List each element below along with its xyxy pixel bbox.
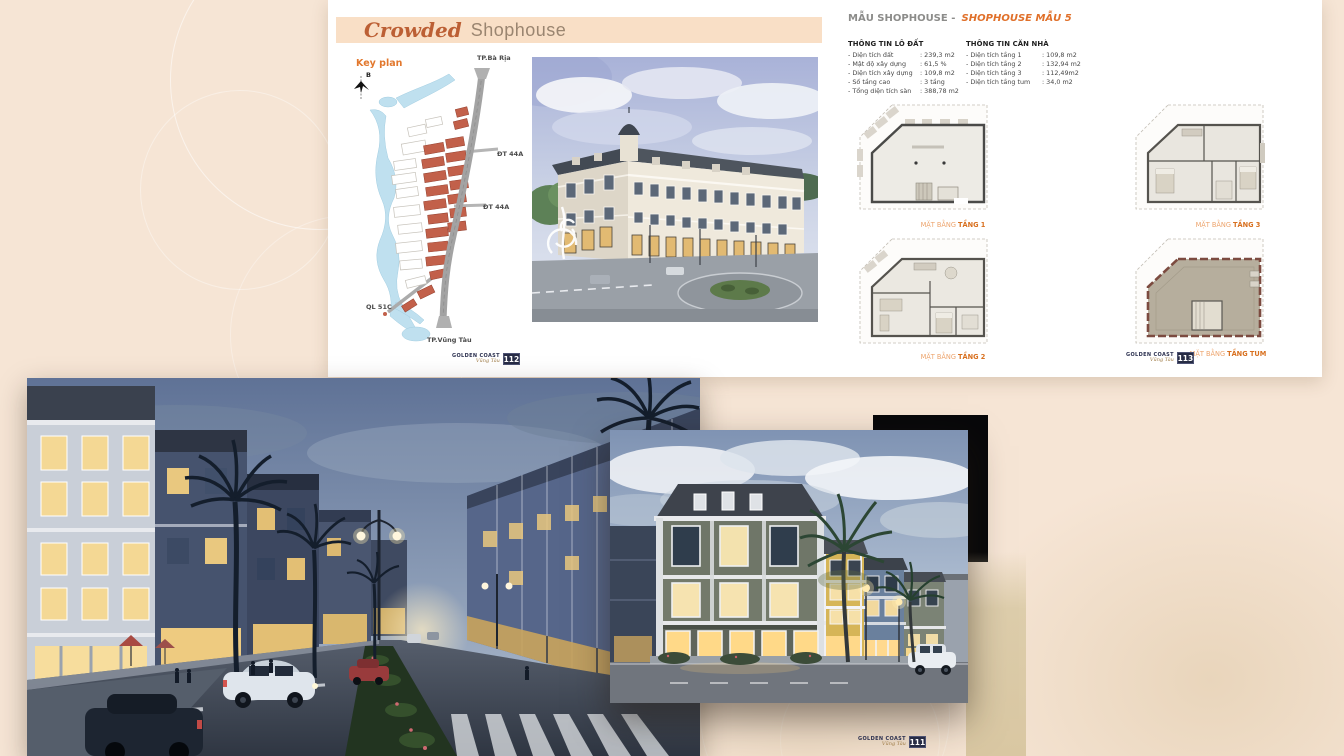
map-label-dt44a-1: ĐT 44A [497, 150, 523, 158]
shophouse-night-street-rendering [27, 378, 700, 756]
floor-plan-tang-3 [1130, 103, 1266, 215]
shophouse-day-rendering [532, 57, 818, 322]
floor-plan-label-tang-3: MẶT BẰNGTẦNG 3 [1160, 221, 1296, 229]
model-title: MẪU SHOPHOUSE - SHOPHOUSE MẪU 5 [848, 13, 1072, 24]
lot-info-panel: THÔNG TIN LÔ ĐẤT - Diện tích đất: 239,3 … [848, 40, 966, 97]
floor-plan-tang-1 [856, 103, 990, 215]
spec-row: - Diện tích đất: 239,3 m2 [848, 52, 966, 60]
brand-logo: GOLDEN COAST Vũng Tàu [1126, 353, 1174, 364]
spec-row: - Diện tích tầng 3: 112,49m2 [966, 70, 1090, 78]
map-label-tp-ba-ria: TP.Bà Rịa [477, 54, 511, 62]
spec-row: - Diện tích tầng 1: 109,8 m2 [966, 52, 1090, 60]
page-number-badge: 111 [909, 736, 926, 748]
map-label-ql51c: QL 51C [366, 303, 392, 311]
house-info-panel: THÔNG TIN CĂN NHÀ - Diện tích tầng 1: 10… [966, 40, 1090, 88]
shophouse-dusk-corner-rendering [610, 430, 968, 703]
page-number-badge: 112 [503, 353, 520, 365]
floor-plan-tang-2 [856, 237, 990, 349]
page-footer-111: GOLDEN COAST Vũng Tàu 111 [858, 736, 926, 748]
floor-plan-label-tang-2: MẶT BẰNGTẦNG 2 [886, 353, 1020, 361]
model-title-prefix: MẪU SHOPHOUSE - [848, 13, 955, 24]
spec-row: - Diện tích tầng tum: 34,0 m2 [966, 79, 1090, 87]
spec-row: - Diện tích xây dựng: 109,8 m2 [848, 70, 966, 78]
brand-script: Vũng Tàu [452, 359, 500, 365]
spec-row: - Tổng diện tích sàn: 388,78 m2 [848, 88, 966, 96]
brand-script: Vũng Tàu [1126, 358, 1174, 364]
brand-script: Vũng Tàu [858, 742, 906, 748]
lot-info-heading: THÔNG TIN LÔ ĐẤT [848, 40, 966, 48]
spec-row: - Diện tích tầng 2: 132,94 m2 [966, 61, 1090, 69]
map-label-dt44a-2: ĐT 44A [483, 203, 509, 211]
page-footer-112: GOLDEN COAST Vũng Tàu 112 [452, 353, 520, 365]
model-title-accent: SHOPHOUSE MẪU 5 [962, 13, 1072, 24]
map-label-tp-vung-tau: TP.Vũng Tàu [427, 336, 472, 344]
page-header-band: Crowded Shophouse [336, 17, 822, 43]
house-info-heading: THÔNG TIN CĂN NHÀ [966, 40, 1090, 48]
page-footer-113: GOLDEN COAST Vũng Tàu 113 [1126, 352, 1194, 364]
page-title-regular: Shophouse [471, 20, 567, 41]
tan-accent-band [966, 552, 1026, 756]
brand-logo: GOLDEN COAST Vũng Tàu [452, 354, 500, 365]
spec-row: - Mật độ xây dựng: 61,5 % [848, 61, 966, 69]
spec-row: - Số tầng cao: 3 tầng [848, 79, 966, 87]
brand-logo: GOLDEN COAST Vũng Tàu [858, 737, 906, 748]
page-number-badge: 113 [1177, 352, 1194, 364]
floor-plan-tang-tum [1130, 237, 1266, 349]
floor-plan-label-tang-1: MẶT BẰNGTẦNG 1 [886, 221, 1020, 229]
page-title-script: Crowded [364, 18, 462, 42]
